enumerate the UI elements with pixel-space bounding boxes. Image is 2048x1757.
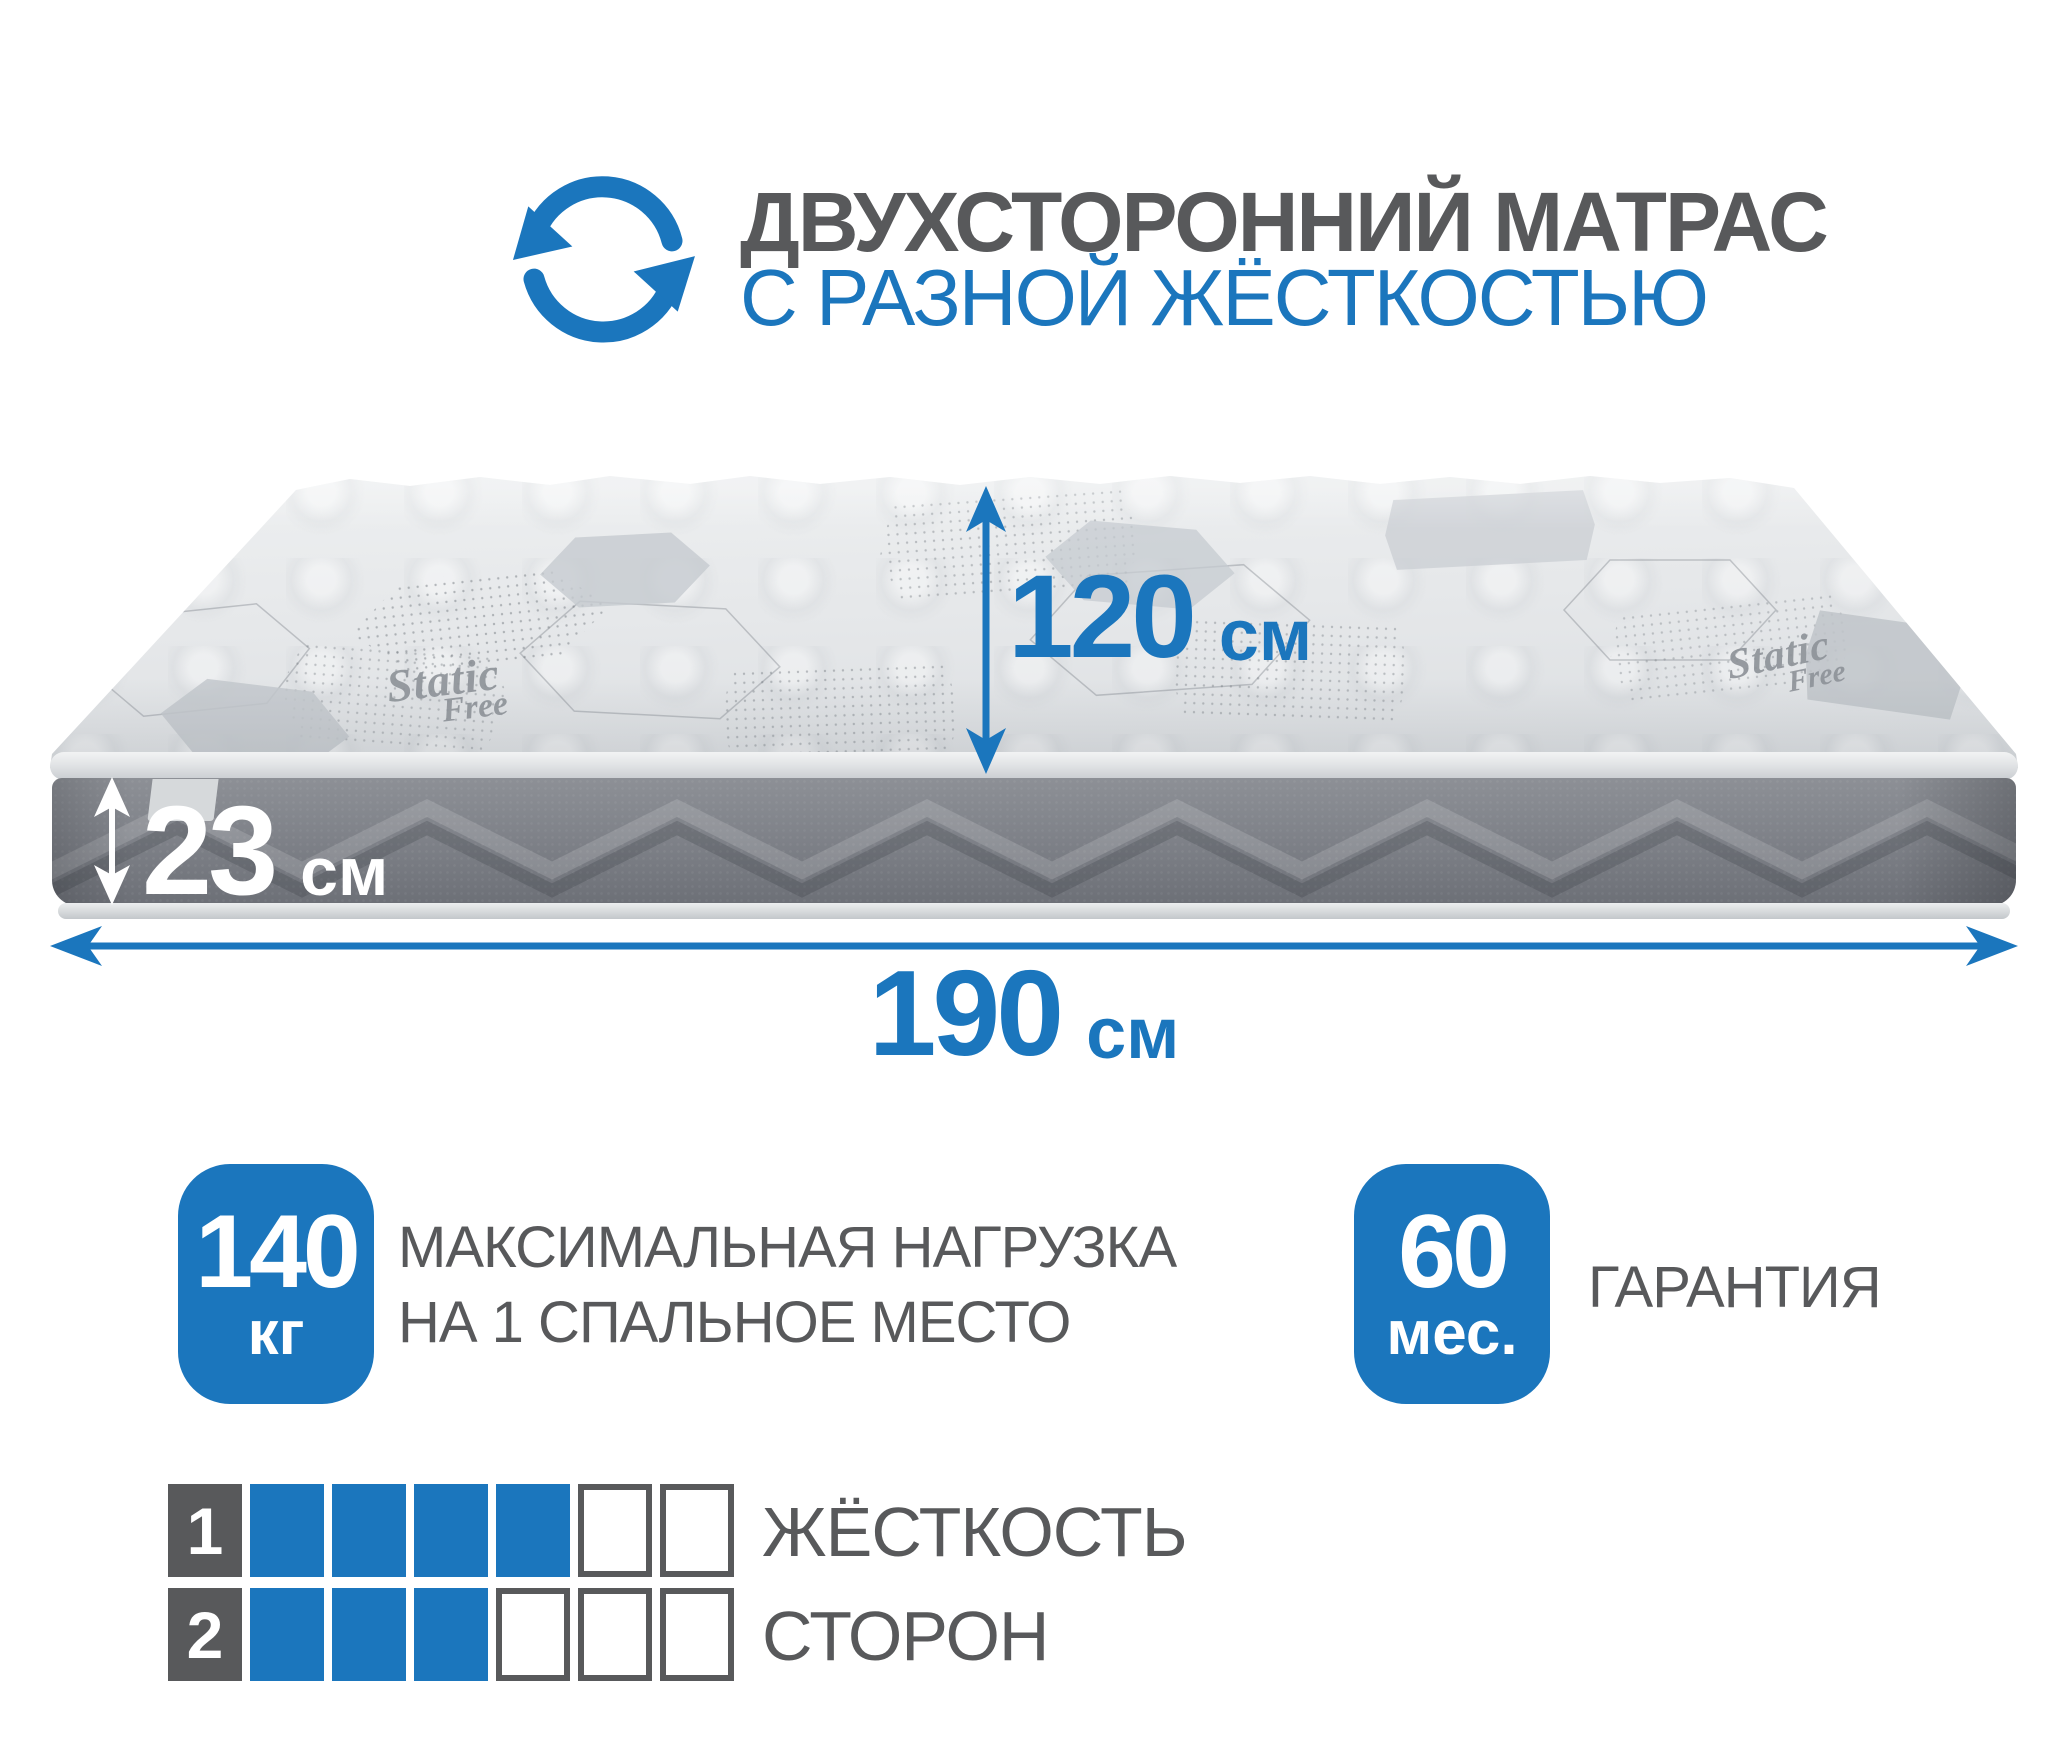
warranty-unit: мес. — [1386, 1302, 1517, 1365]
firmness-cell-empty — [578, 1484, 652, 1577]
firmness-cell-empty — [496, 1588, 570, 1681]
height-value: 23 — [142, 788, 274, 914]
length-unit: см — [1086, 998, 1179, 1074]
firmness-cell-empty — [578, 1588, 652, 1681]
height-unit: см — [300, 838, 388, 914]
firmness-label-line2: СТОРОН — [762, 1601, 1048, 1671]
firmness-cell-empty — [660, 1484, 734, 1577]
mattress-infographic: ДВУХСТОРОННИЙ МАТРАС С РАЗНОЙ ЖЁСТКОСТЬЮ — [0, 0, 2048, 1757]
warranty-value: 60 — [1398, 1203, 1506, 1302]
depth-dimension-arrow — [956, 486, 1016, 774]
firmness-cell-filled — [496, 1484, 570, 1577]
firmness-cell-filled — [250, 1588, 324, 1681]
max-load-value: 140 — [195, 1203, 357, 1302]
firmness-side-index: 1 — [168, 1484, 242, 1577]
fabric-brand-logo: Static Free — [385, 655, 510, 731]
firmness-cell-filled — [332, 1484, 406, 1577]
depth-value: 120 — [1008, 558, 1193, 676]
fabric-brand-line2: Free — [1787, 659, 1847, 694]
fabric-brand-line1: Static — [1725, 626, 1843, 683]
warranty-badge: 60 мес. — [1354, 1164, 1550, 1404]
depth-unit: см — [1219, 600, 1312, 676]
max-load-unit: кг — [248, 1302, 305, 1365]
fabric-brand-logo: Static Free — [1725, 626, 1847, 706]
fabric-brand-line2: Free — [441, 691, 510, 725]
max-load-badge: 140 кг — [178, 1164, 374, 1404]
height-dimension-label: 23 см — [142, 788, 388, 914]
firmness-cell-empty — [660, 1588, 734, 1681]
firmness-row-side-2: 2 — [168, 1588, 734, 1681]
firmness-row-side-1: 1 — [168, 1484, 734, 1577]
length-dimension-label: 190 см — [0, 952, 2048, 1074]
firmness-cell-filled — [414, 1588, 488, 1681]
mattress-edge-piping — [50, 752, 2018, 780]
page-title: ДВУХСТОРОННИЙ МАТРАС — [740, 180, 1827, 264]
firmness-cell-filled — [332, 1588, 406, 1681]
max-load-label-line2: НА 1 СПАЛЬНОЕ МЕСТО — [398, 1285, 1176, 1360]
fabric-brand-line1: Static — [385, 655, 507, 705]
firmness-cell-filled — [250, 1484, 324, 1577]
flip-rotation-icon — [505, 168, 701, 350]
depth-dimension-label: 120 см — [1008, 558, 1312, 676]
max-load-label: МАКСИМАЛЬНАЯ НАГРУЗКА НА 1 СПАЛЬНОЕ МЕСТ… — [398, 1210, 1176, 1361]
height-dimension-arrow — [84, 777, 140, 905]
max-load-label-line1: МАКСИМАЛЬНАЯ НАГРУЗКА — [398, 1210, 1176, 1285]
firmness-label-line1: ЖЁСТКОСТЬ — [762, 1497, 1187, 1567]
length-value: 190 — [869, 952, 1061, 1074]
warranty-label: ГАРАНТИЯ — [1588, 1250, 1881, 1325]
firmness-cell-filled — [414, 1484, 488, 1577]
page-subtitle: С РАЗНОЙ ЖЁСТКОСТЬЮ — [740, 258, 1707, 338]
firmness-side-index: 2 — [168, 1588, 242, 1681]
